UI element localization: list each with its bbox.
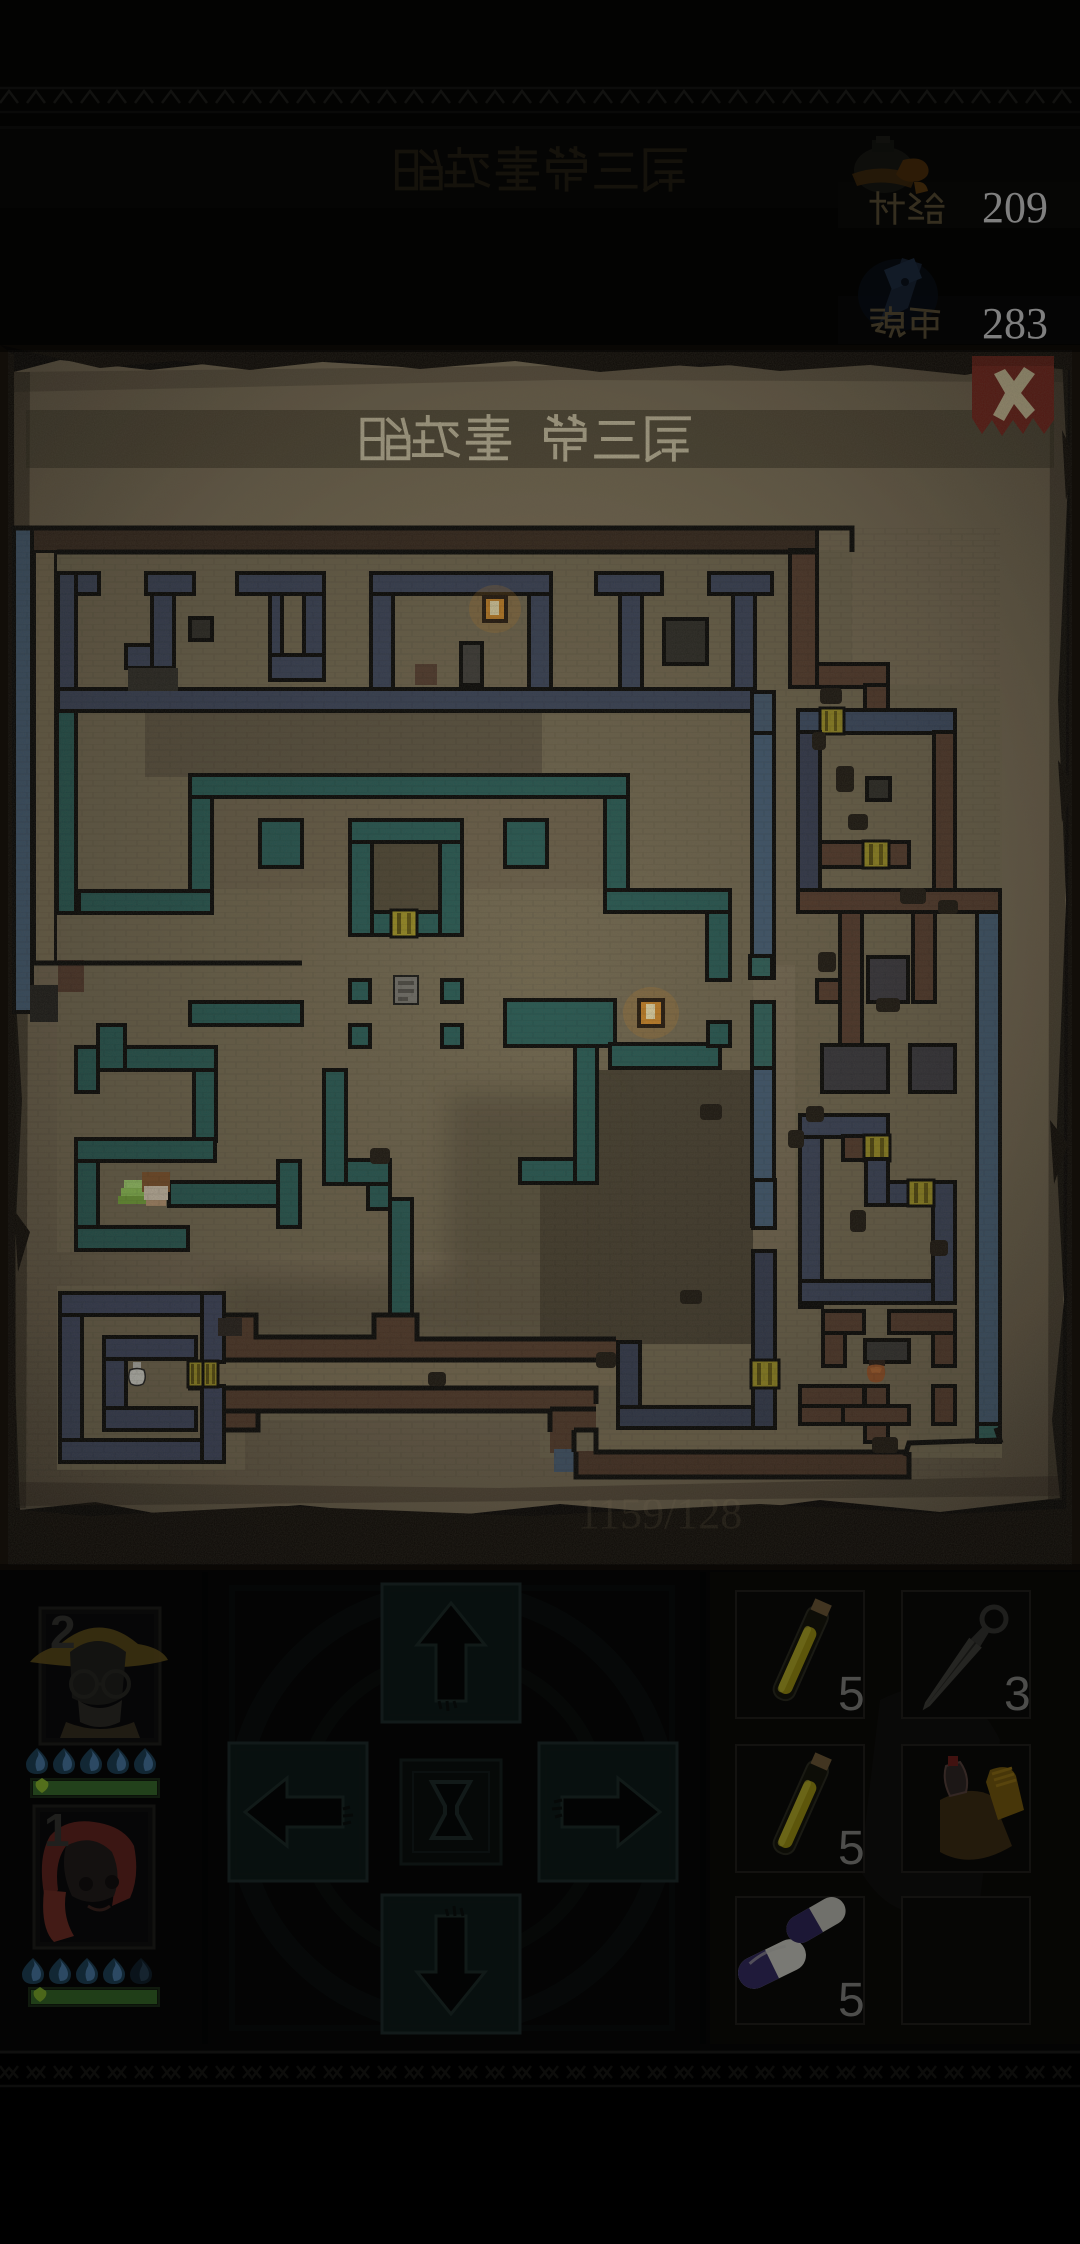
svg-text:1159/128: 1159/128 [578, 1489, 743, 1538]
